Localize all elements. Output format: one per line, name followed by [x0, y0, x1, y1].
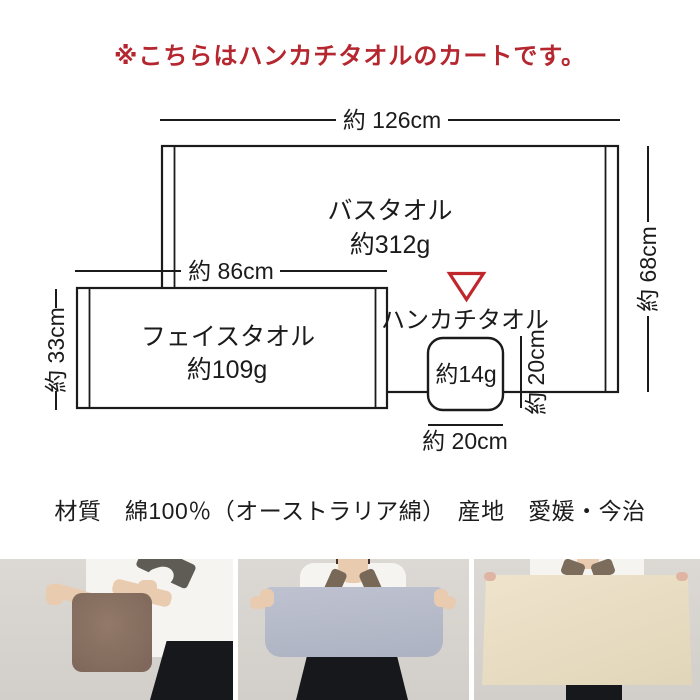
bath-towel-height-label: 約 68cm: [635, 226, 661, 312]
model-skirt: [566, 685, 622, 700]
face-towel-photo: [238, 559, 469, 700]
bath-towel-sample: [482, 575, 692, 685]
material-origin-text: 材質 綿100％（オーストラリア綿） 産地 愛媛・今治: [0, 492, 700, 526]
hand-towel-name: ハンカチタオル: [381, 307, 549, 334]
bath-towel-width-label: 約 126cm: [343, 107, 441, 133]
hand-towel-weight: 約14g: [435, 361, 496, 387]
face-towel-height-label: 約 33cm: [43, 307, 69, 393]
model-left-fingers: [484, 572, 496, 581]
hand-towel-photo: [0, 559, 233, 700]
bath-towel-weight: 約312g: [350, 231, 431, 259]
bath-towel-name: バスタオル: [327, 197, 452, 225]
face-towel-weight: 約109g: [187, 356, 268, 384]
model-left-hand: [260, 589, 274, 607]
face-towel-width-label: 約 86cm: [188, 258, 274, 284]
face-towel-sample: [265, 587, 443, 657]
bath-towel-photo: [474, 559, 700, 700]
model-left-hand: [46, 584, 63, 605]
product-size-infographic: ※こちらはハンカチタオルのカートです。 約 126cm 約 68cm 約 86c…: [0, 0, 700, 700]
photo-strip: [0, 559, 700, 700]
face-towel-name: フェイスタオル: [141, 323, 315, 351]
towel-size-diagram: 約 126cm 約 68cm 約 86cm 約 33cm 約 20cm 約 20…: [0, 0, 700, 470]
hand-towel-sample: [72, 593, 152, 672]
model-skirt: [296, 655, 408, 700]
model-right-hand: [434, 589, 448, 607]
hand-towel-height-label: 約 20cm: [523, 329, 549, 415]
hand-towel-width-label: 約 20cm: [422, 428, 508, 454]
model-right-fingers: [676, 572, 688, 581]
